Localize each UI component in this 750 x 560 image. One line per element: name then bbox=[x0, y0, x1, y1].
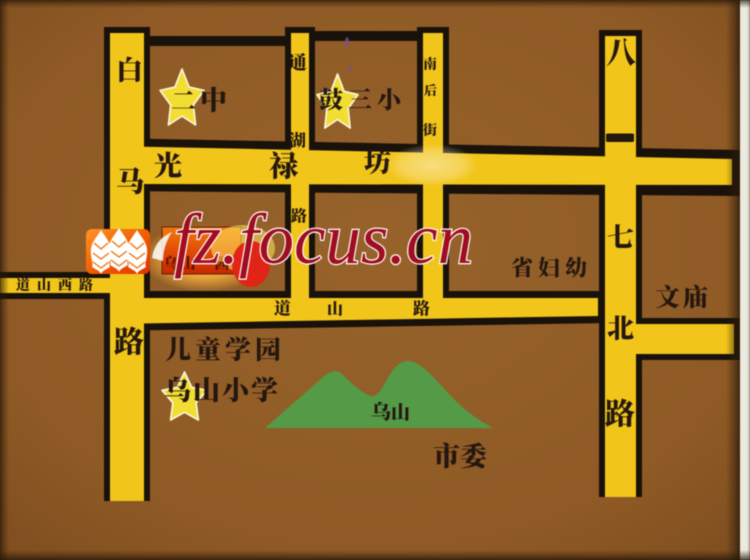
svg-text:fz.focus.cn: fz.focus.cn bbox=[174, 199, 473, 279]
